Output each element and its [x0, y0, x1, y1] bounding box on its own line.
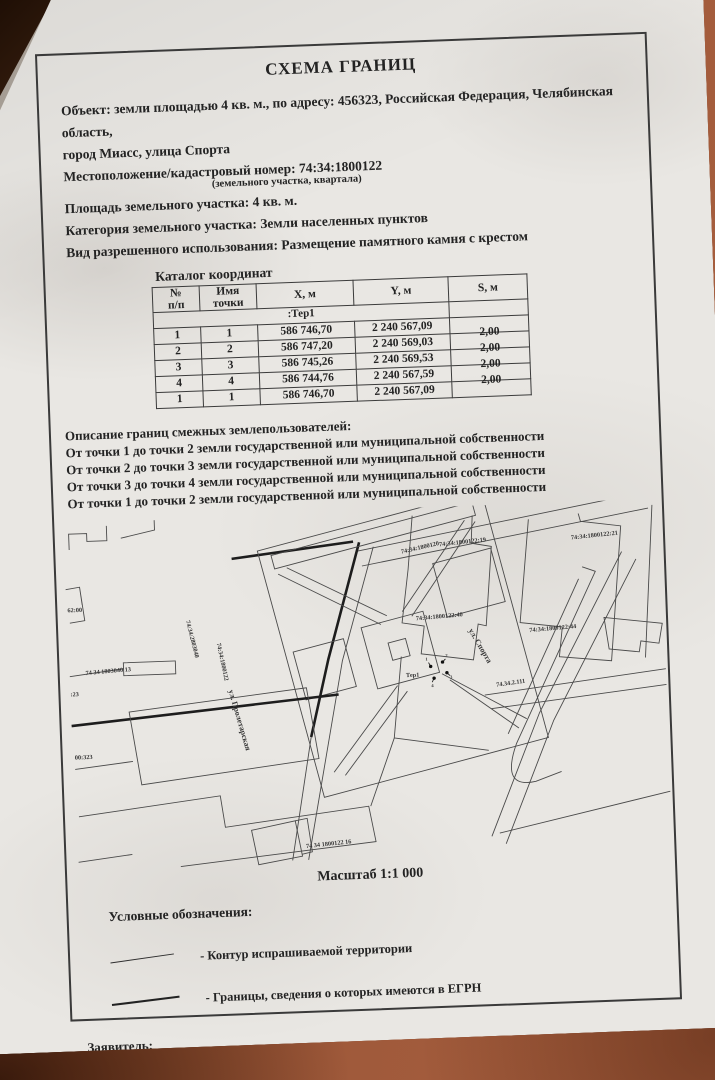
map-label-parcel-00323: 00:323 — [75, 754, 93, 762]
map-label-road-2-111: 74.34.2.111 — [496, 678, 526, 689]
map-label-parcel-62: 62:00 — [67, 607, 82, 614]
map-label-street-sporta: ул. Спорта — [467, 627, 494, 665]
contour-line-sample — [110, 954, 174, 964]
legend-item: - Контур испрашиваемой территории — [110, 932, 666, 967]
point-number: 4 — [431, 684, 434, 689]
legend: Условные обозначения: - Контур испрашива… — [108, 889, 667, 1009]
legend-item: - Границы, сведения о которых имеются в … — [111, 974, 667, 1009]
col-header-s: S, м — [448, 273, 528, 301]
paper-sheet: СХЕМА ГРАНИЦ Объект: земли площадью 4 кв… — [0, 0, 715, 1054]
boundaries-description: Описание границ смежных землепользовател… — [65, 406, 648, 513]
col-header-x: X, м — [256, 280, 354, 309]
map-label-parcel-19: 74:34:1800122:19 — [439, 537, 487, 549]
point-number: 3 — [450, 675, 453, 680]
object-info: Объект: земли площадью 4 кв. м., по адре… — [61, 79, 639, 263]
col-header-num: №п/п — [152, 285, 200, 312]
egrn-line-sample — [112, 996, 180, 1006]
map-drawing: 74:34:1800120 74:34:1800122:19 74:34:180… — [60, 499, 673, 877]
map-label-parcel-23: :23 — [70, 692, 79, 699]
legend-title: Условные обозначения: — [108, 889, 664, 925]
point-number: 1 — [425, 657, 428, 662]
coordinates-table: №п/п Имяточки X, м Y, м S, м :Тер1 1 1 5… — [152, 273, 532, 409]
document-frame: СХЕМА ГРАНИЦ Объект: земли площадью 4 кв… — [35, 32, 682, 1022]
legend-item-label: - Границы, сведения о которых имеются в … — [205, 981, 481, 1006]
legend-item-label: - Контур испрашиваемой территории — [200, 942, 413, 965]
map-label-quarter-1800120: 74:34:1800120 — [400, 541, 439, 556]
map-label-parcel-21: 74:34:1800122:21 — [571, 530, 619, 542]
map-label-quarter-2803040: 74:34:2803040 — [184, 620, 200, 659]
col-header-point: Имяточки — [199, 283, 257, 310]
map-label-parcel-16: 74 34 1800122 16 — [306, 839, 352, 851]
col-header-y: Y, м — [353, 276, 449, 305]
map-label-quarter-1800122: 74:34:1800122 — [215, 643, 230, 682]
territory-label: Тер1 — [406, 672, 420, 679]
boundary-map: 74:34:1800120 74:34:1800122:19 74:34:180… — [64, 500, 663, 877]
map-label-parcel-40: 74:34:1800122:40 — [416, 612, 464, 623]
map-label-street-proletarskaya: ул. Пролетарская — [227, 689, 254, 753]
